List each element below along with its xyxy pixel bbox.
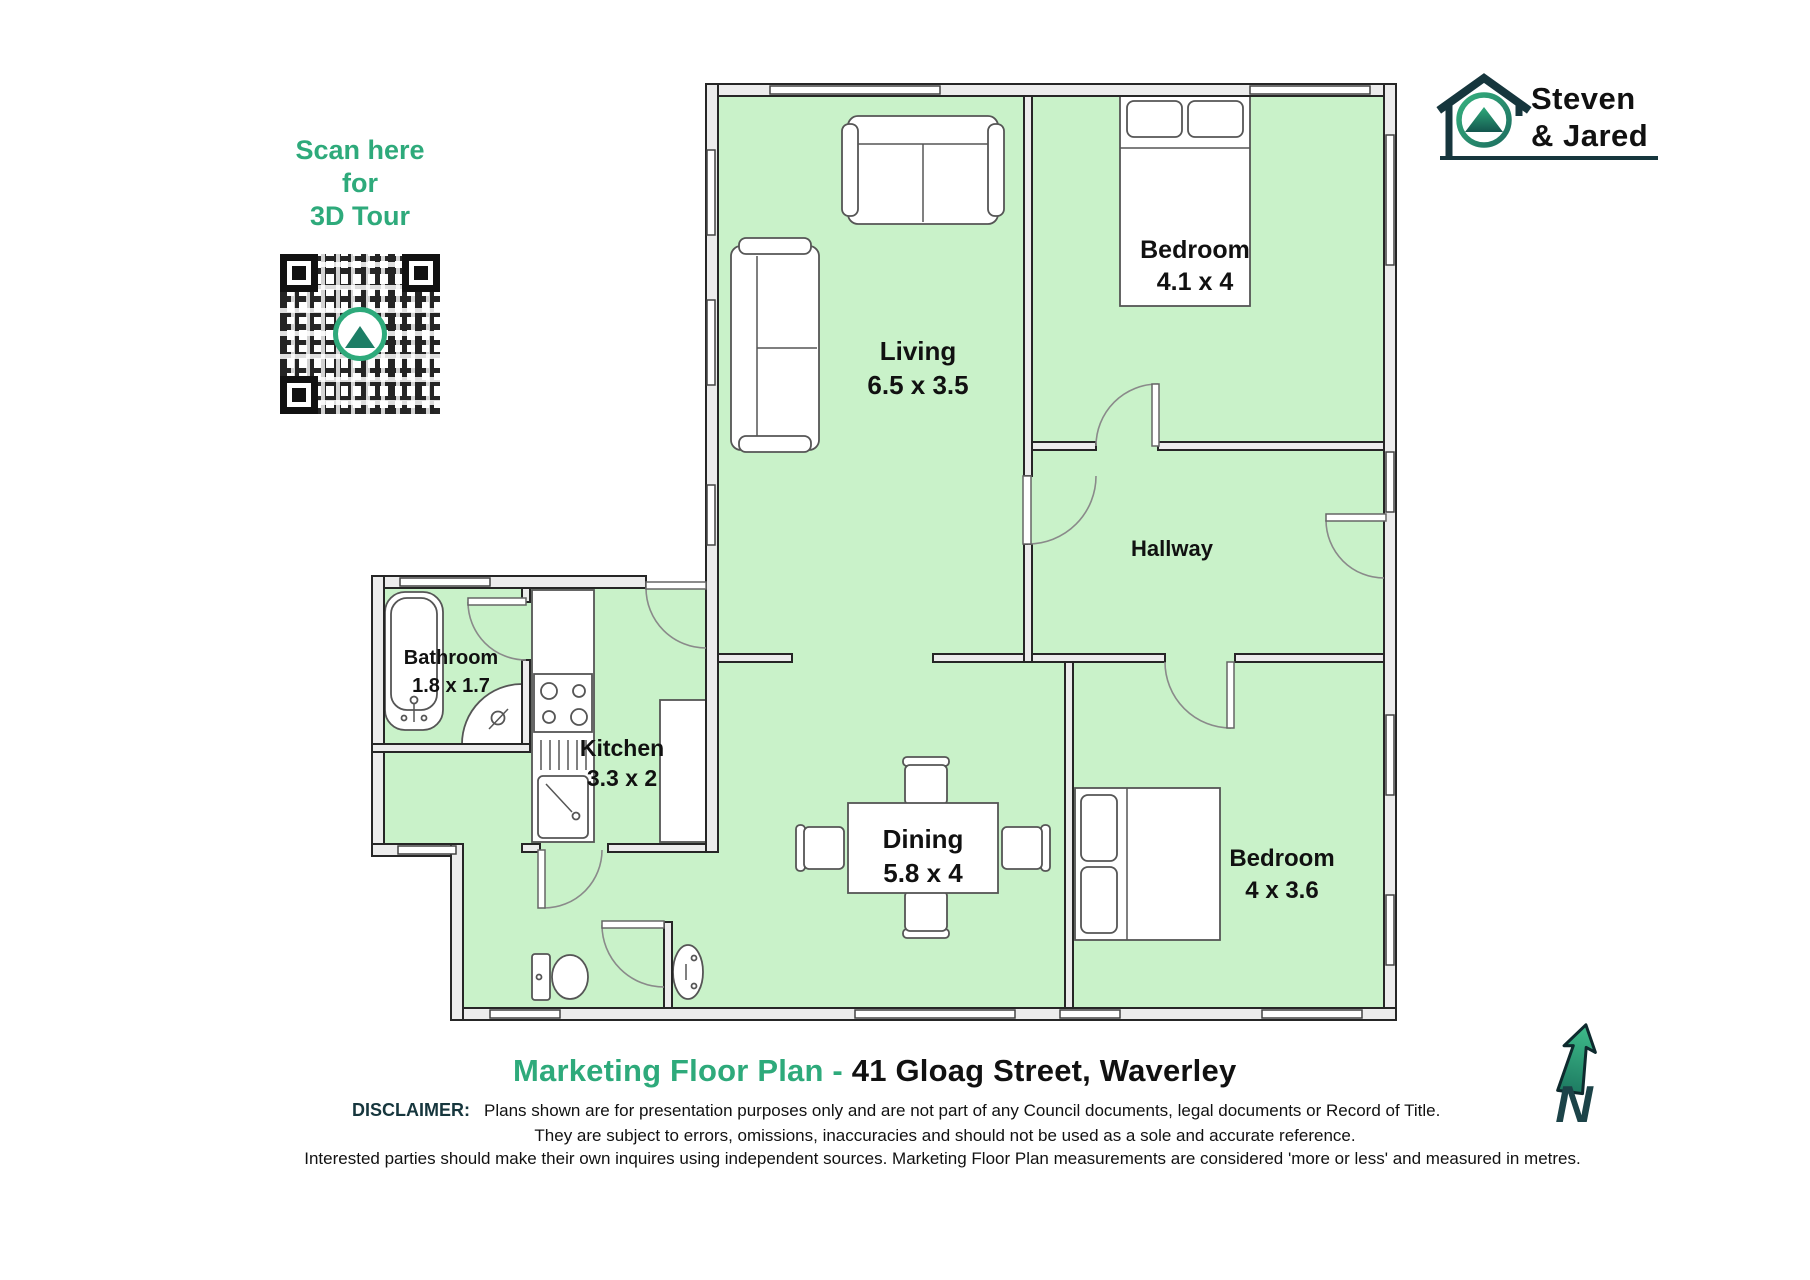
window xyxy=(398,846,456,854)
label-dining-dims: 5.8 x 4 xyxy=(883,858,963,888)
label-kitchen-name: Kitchen xyxy=(580,735,664,761)
wall-segment xyxy=(372,744,530,752)
window xyxy=(1386,452,1394,512)
window xyxy=(707,485,715,545)
sofa-small xyxy=(731,238,819,452)
kitchen-counter xyxy=(660,700,706,842)
label-bathroom-name: Bathroom xyxy=(404,647,498,669)
toilet xyxy=(532,954,588,1000)
label-hallway: Hallway xyxy=(1131,536,1214,561)
wall-segment xyxy=(1235,654,1384,662)
scan-cta-line3: 3D Tour xyxy=(255,200,465,233)
qr-code xyxy=(278,252,442,416)
north-arrow: N xyxy=(1555,1021,1601,1134)
label-bathroom-dims: 1.8 x 1.7 xyxy=(412,675,490,697)
wall-segment xyxy=(1024,544,1032,662)
window xyxy=(1250,86,1370,94)
window xyxy=(707,300,715,385)
label-living-dims: 6.5 x 3.5 xyxy=(867,370,968,400)
wall-segment xyxy=(933,654,1024,662)
window xyxy=(400,578,490,586)
window xyxy=(1386,135,1394,265)
label-bedroom2-dims: 4 x 3.6 xyxy=(1245,877,1318,904)
wall-segment xyxy=(718,654,792,662)
window xyxy=(1386,895,1394,965)
disclaimer-text1: Plans shown are for presentation purpose… xyxy=(484,1101,1440,1120)
label-bedroom2-name: Bedroom xyxy=(1229,845,1334,872)
disclaimer-line2: They are subject to errors, omissions, i… xyxy=(0,1126,1810,1146)
wall-segment xyxy=(608,844,706,852)
title-address: 41 Gloag Street, Waverley xyxy=(852,1053,1237,1088)
label-kitchen-dims: 3.3 x 2 xyxy=(587,765,657,791)
wall-segment xyxy=(1158,442,1384,450)
scan-cta-line2: for xyxy=(255,167,465,200)
window xyxy=(855,1010,1015,1018)
logo-name-line2: & Jared xyxy=(1531,117,1648,154)
logo-house-icon xyxy=(1434,66,1534,166)
sofa-large xyxy=(842,116,1004,224)
label-bedroom1-dims: 4.1 x 4 xyxy=(1157,268,1234,296)
window xyxy=(1060,1010,1120,1018)
wall-segment xyxy=(1065,662,1073,1008)
scan-cta: Scan here for 3D Tour xyxy=(255,134,465,233)
wall-segment xyxy=(451,844,463,1020)
page-title: Marketing Floor Plan - 41 Gloag Street, … xyxy=(513,1053,1236,1089)
qr-finder-top-left xyxy=(280,254,318,292)
window xyxy=(770,86,940,94)
floor-plan-page: Living 6.5 x 3.5 Bedroom 4.1 x 4 Hallway… xyxy=(0,0,1810,1280)
wall-segment xyxy=(1032,654,1165,662)
basin xyxy=(673,945,703,999)
label-bedroom1-name: Bedroom xyxy=(1140,236,1250,264)
logo-name: Steven & Jared xyxy=(1531,80,1648,154)
label-dining-name: Dining xyxy=(883,824,964,854)
room-main-floor xyxy=(712,90,1390,1014)
logo-underline xyxy=(1440,156,1658,160)
wall-segment xyxy=(1024,96,1032,476)
qr-center-logo-icon xyxy=(333,307,387,361)
wall-segment xyxy=(522,660,530,750)
window xyxy=(707,150,715,235)
window xyxy=(1262,1010,1362,1018)
kitchen-sink xyxy=(538,776,588,838)
label-living-name: Living xyxy=(880,336,957,366)
disclaimer-label: DISCLAIMER: xyxy=(352,1100,470,1120)
wall-segment xyxy=(1032,442,1096,450)
kitchen-bench xyxy=(532,590,594,842)
window xyxy=(490,1010,560,1018)
window xyxy=(1386,715,1394,795)
qr-finder-bottom-left xyxy=(280,376,318,414)
bed-bedroom2 xyxy=(1075,788,1220,940)
title-prefix: Marketing Floor Plan - xyxy=(513,1053,852,1088)
disclaimer-line1: DISCLAIMER:Plans shown are for presentat… xyxy=(352,1100,1440,1121)
wall-segment xyxy=(664,922,672,1008)
disclaimer-line3: Interested parties should make their own… xyxy=(0,1149,1810,1169)
wall-segment xyxy=(372,576,384,856)
qr-finder-top-right xyxy=(402,254,440,292)
scan-cta-line1: Scan here xyxy=(255,134,465,167)
logo-name-line1: Steven xyxy=(1531,80,1648,117)
